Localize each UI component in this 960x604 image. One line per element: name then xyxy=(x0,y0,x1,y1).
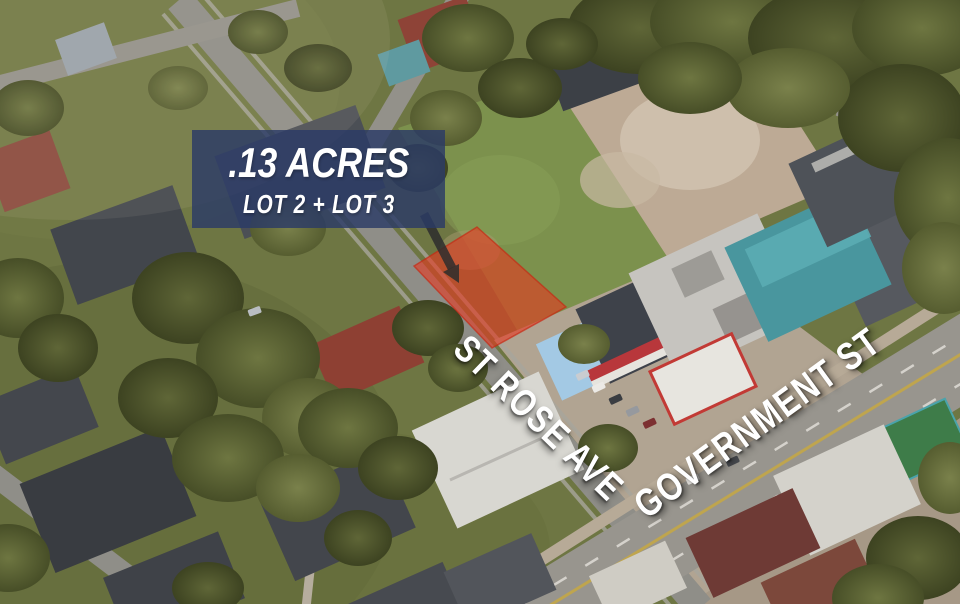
acreage-text: .13 ACRES xyxy=(228,142,409,184)
tree xyxy=(726,48,850,128)
aerial-listing-image: .13 ACRES LOT 2 + LOT 3 ST ROSE AVE GOVE… xyxy=(0,0,960,604)
tree xyxy=(358,436,438,500)
tree xyxy=(256,454,340,522)
grass-patch xyxy=(440,155,560,245)
worn-path xyxy=(440,230,500,270)
gravel-patch xyxy=(580,152,660,208)
aerial-scene xyxy=(0,0,960,604)
tree xyxy=(18,314,98,382)
tree xyxy=(324,510,392,566)
tree xyxy=(558,324,610,364)
tree xyxy=(638,42,742,114)
tree xyxy=(526,18,598,70)
listing-banner: .13 ACRES LOT 2 + LOT 3 xyxy=(192,130,445,228)
lots-text: LOT 2 + LOT 3 xyxy=(242,191,394,217)
